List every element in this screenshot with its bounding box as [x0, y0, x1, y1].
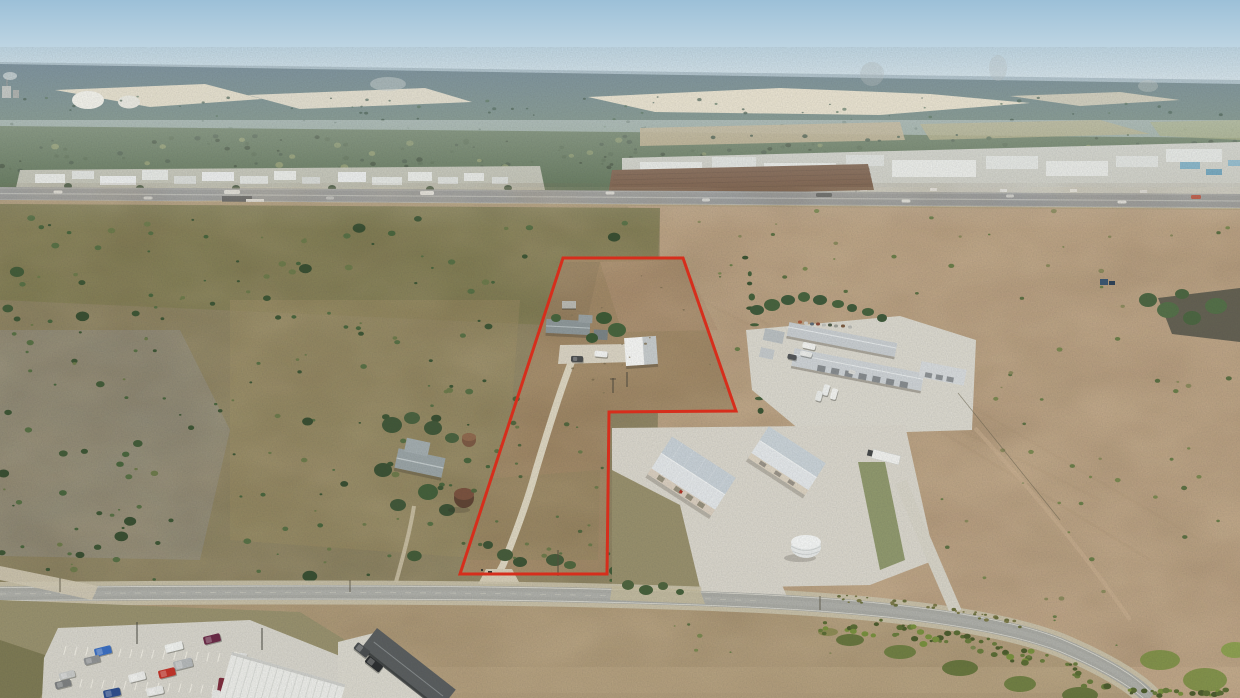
aerial-photo: [0, 0, 1240, 698]
photo-grain: [0, 60, 1240, 698]
aerial-photo-canvas: [0, 0, 1240, 698]
